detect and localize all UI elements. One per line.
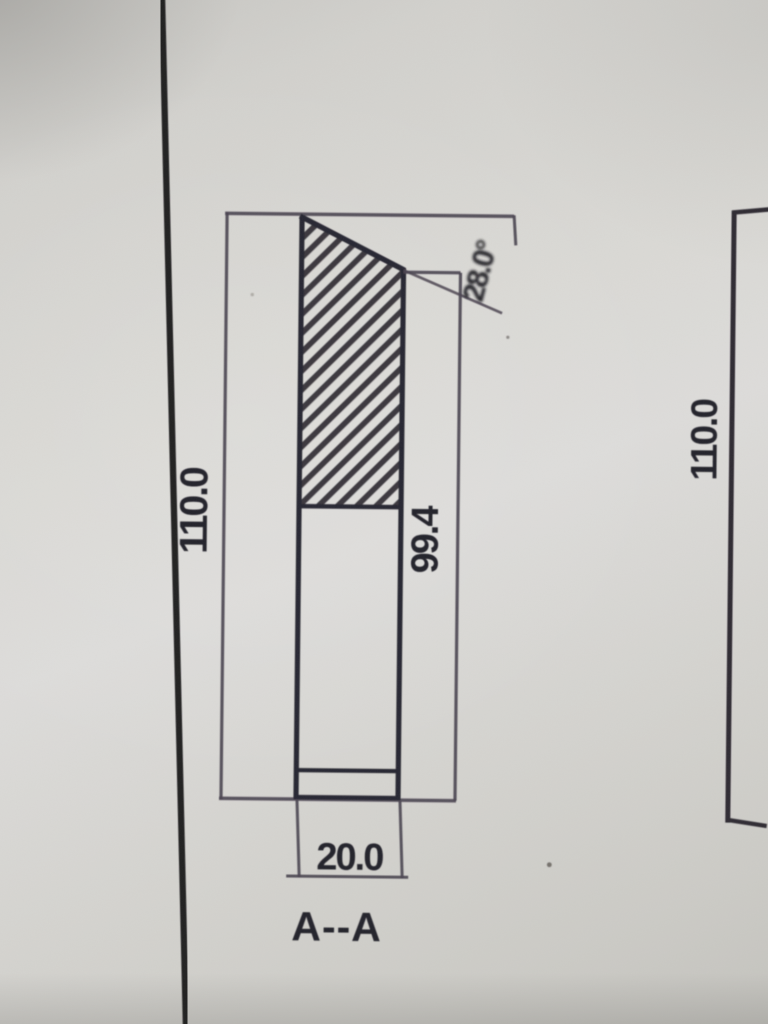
- photo-grain-overlay: [0, 0, 768, 1024]
- paper-photo: 110.0 99.4 20.0 28.0° A--A 110.0: [0, 0, 768, 1024]
- technical-drawing: 110.0 99.4 20.0 28.0° A--A 110.0: [0, 0, 768, 1024]
